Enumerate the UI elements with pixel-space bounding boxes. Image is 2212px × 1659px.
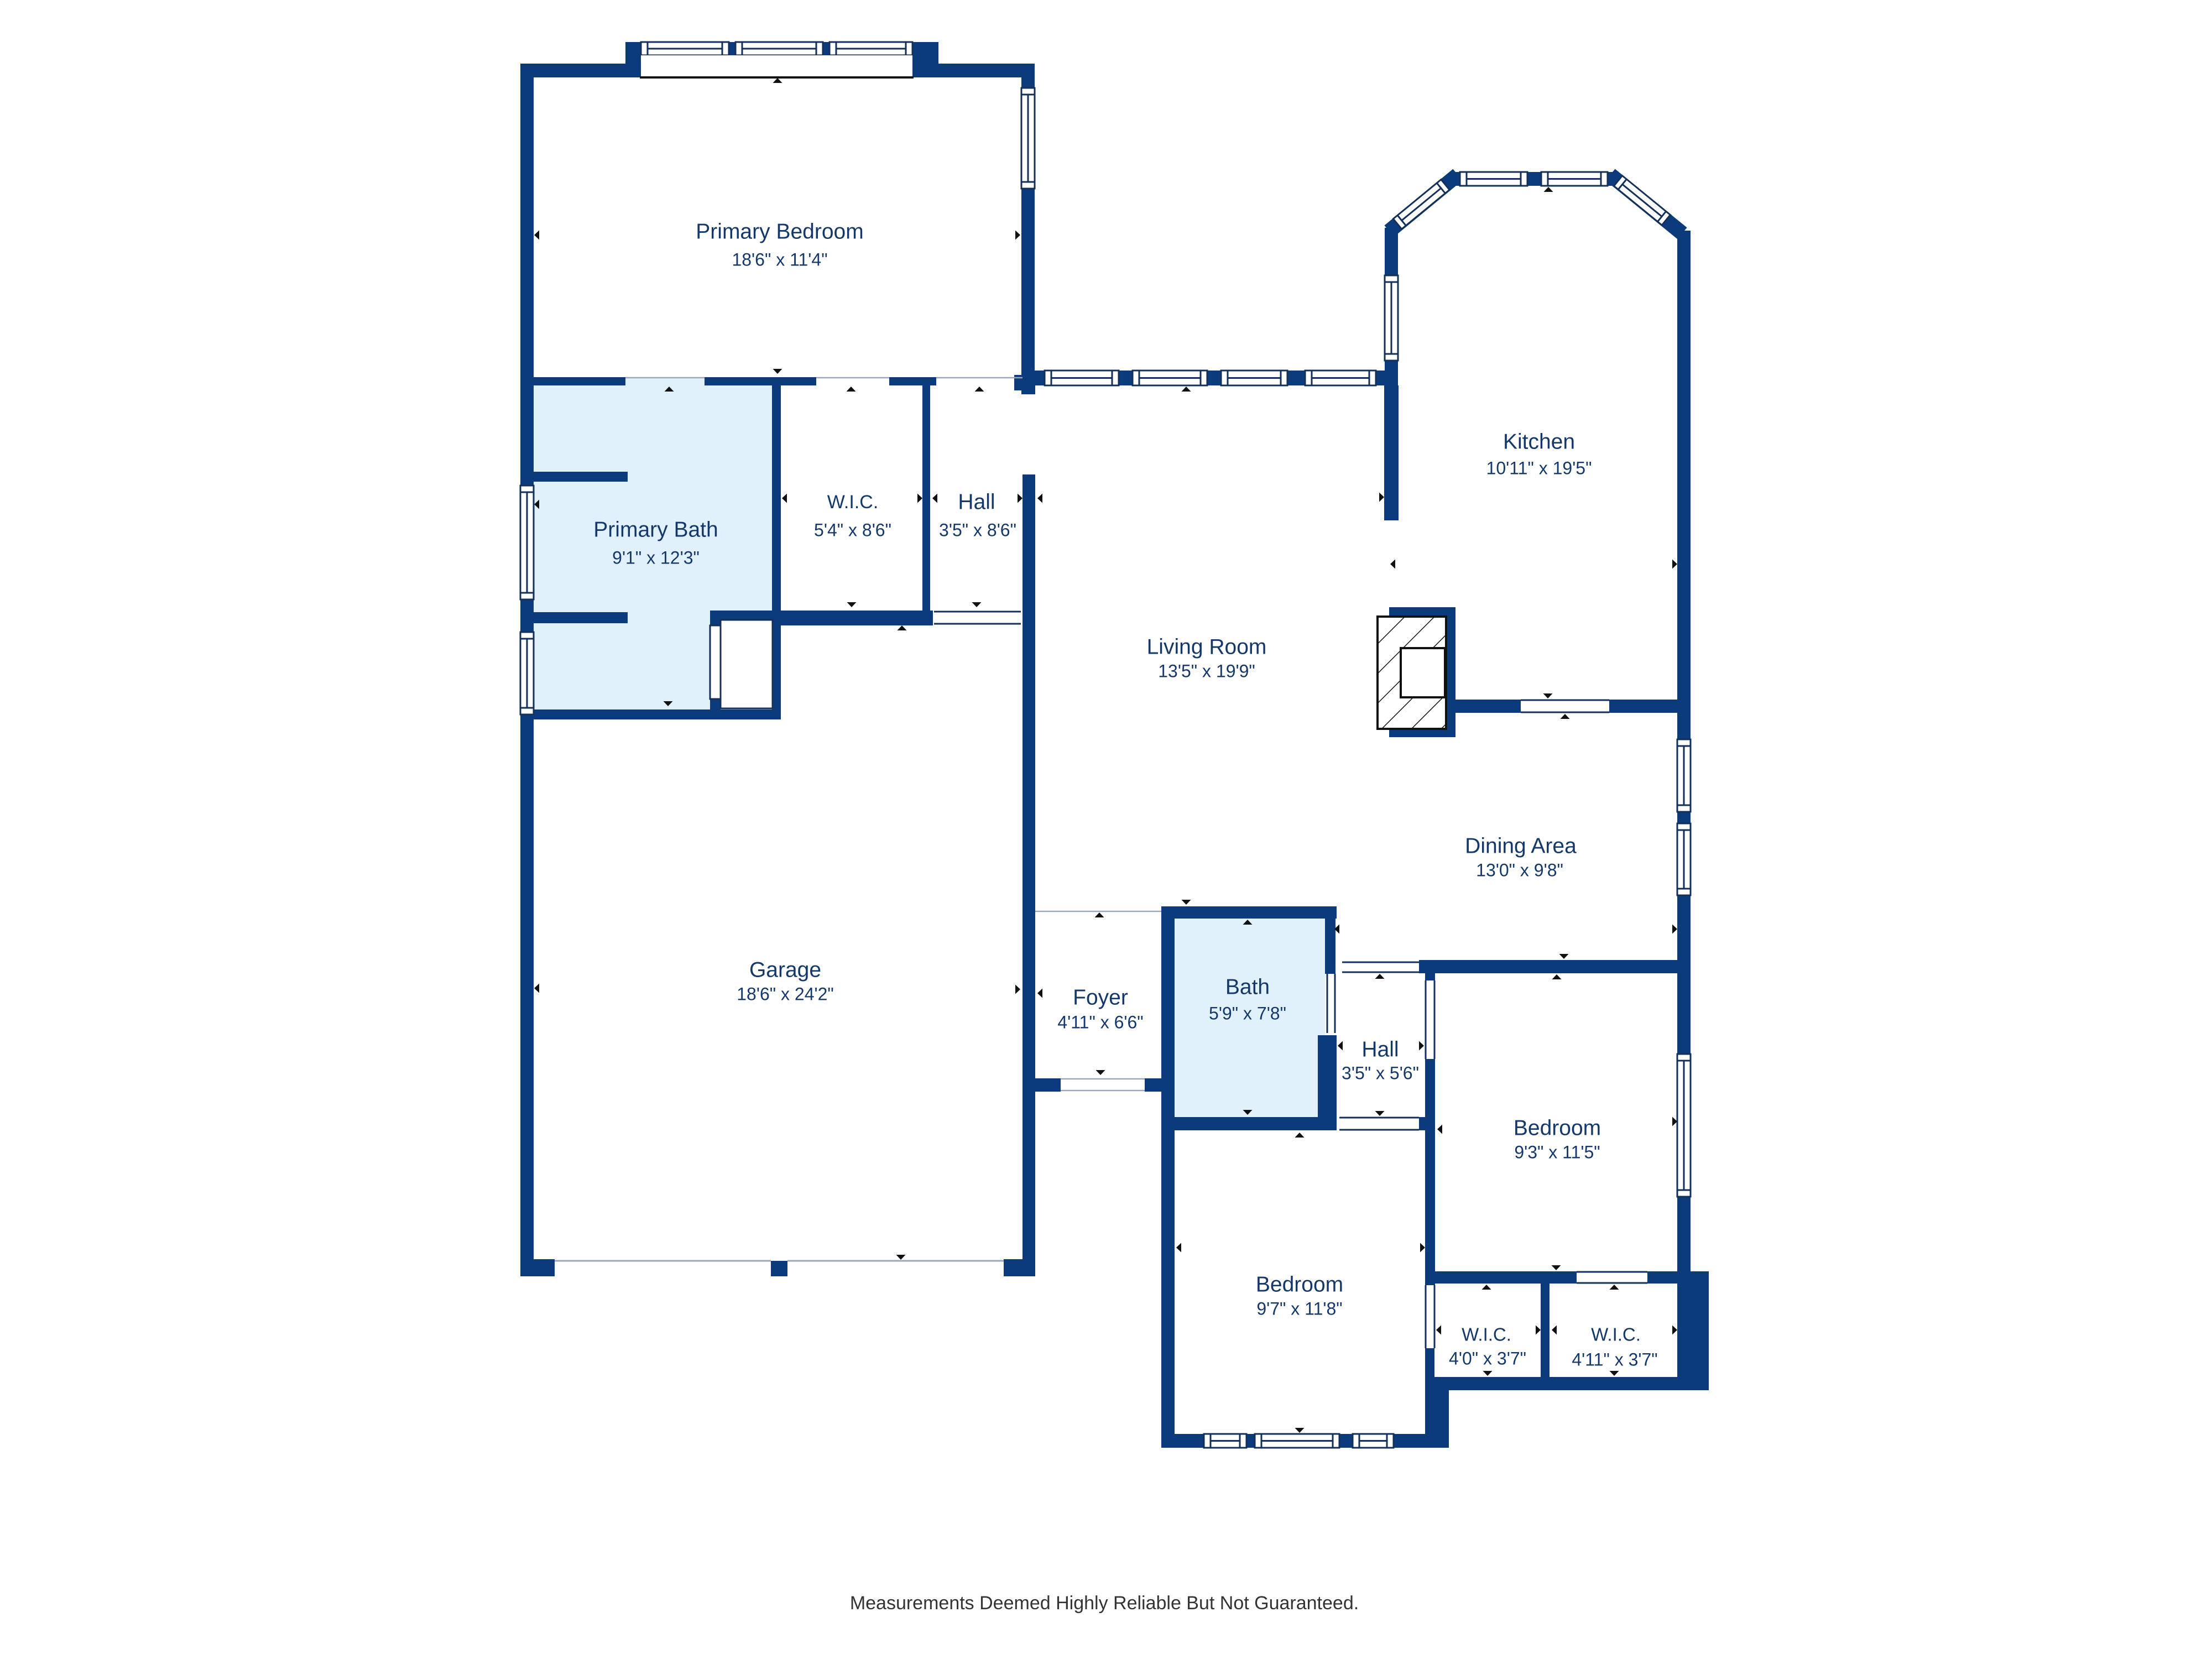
svg-text:W.I.C.: W.I.C. (1462, 1324, 1511, 1345)
svg-text:Garage: Garage (749, 958, 821, 982)
svg-text:Primary Bedroom: Primary Bedroom (696, 220, 863, 243)
svg-text:W.I.C.: W.I.C. (827, 492, 879, 513)
svg-text:5'4" x 8'6": 5'4" x 8'6" (814, 520, 891, 540)
svg-text:4'0" x 3'7": 4'0" x 3'7" (1449, 1348, 1526, 1368)
svg-text:5'9" x 7'8": 5'9" x 7'8" (1209, 1003, 1286, 1023)
svg-text:Measurements Deemed Highly Rel: Measurements Deemed Highly Reliable But … (850, 1593, 1359, 1614)
svg-text:18'6" x 24'2": 18'6" x 24'2" (737, 984, 834, 1004)
svg-text:Dining Area: Dining Area (1465, 834, 1577, 858)
svg-text:13'5" x 19'9": 13'5" x 19'9" (1158, 661, 1255, 681)
svg-text:Kitchen: Kitchen (1503, 430, 1575, 453)
svg-text:W.I.C.: W.I.C. (1591, 1324, 1641, 1345)
svg-text:4'11" x 6'6": 4'11" x 6'6" (1057, 1012, 1143, 1032)
svg-text:10'11" x 19'5": 10'11" x 19'5" (1486, 458, 1592, 478)
svg-text:3'5" x 5'6": 3'5" x 5'6" (1342, 1063, 1419, 1083)
svg-text:Foyer: Foyer (1073, 985, 1128, 1009)
svg-text:Hall: Hall (1361, 1037, 1399, 1061)
svg-text:Bedroom: Bedroom (1514, 1116, 1601, 1140)
svg-text:9'7" x 11'8": 9'7" x 11'8" (1256, 1298, 1342, 1318)
svg-text:4'11" x 3'7": 4'11" x 3'7" (1572, 1349, 1657, 1369)
svg-text:Primary Bath: Primary Bath (593, 518, 718, 541)
svg-text:Hall: Hall (958, 490, 995, 514)
svg-text:Bath: Bath (1225, 975, 1270, 999)
svg-text:9'3" x 11'5": 9'3" x 11'5" (1514, 1142, 1600, 1162)
svg-text:13'0" x 9'8": 13'0" x 9'8" (1476, 860, 1563, 880)
svg-text:Living Room: Living Room (1147, 635, 1267, 659)
svg-text:3'5" x 8'6": 3'5" x 8'6" (939, 520, 1016, 540)
svg-text:Bedroom: Bedroom (1256, 1272, 1343, 1296)
svg-text:18'6" x 11'4": 18'6" x 11'4" (732, 249, 827, 269)
svg-text:9'1" x 12'3": 9'1" x 12'3" (612, 547, 700, 567)
